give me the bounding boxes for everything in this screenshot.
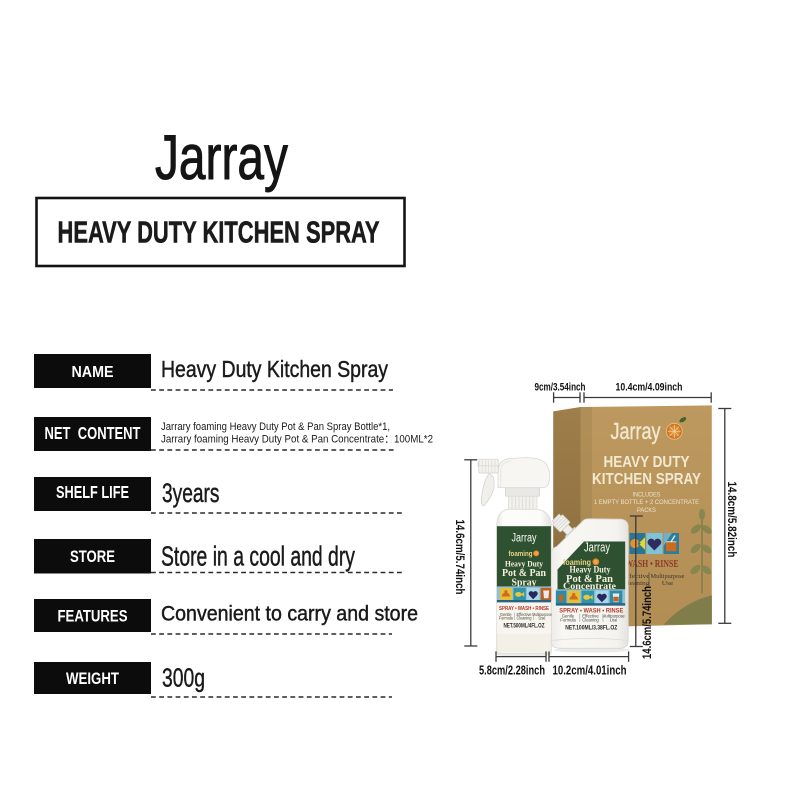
svg-text:14.8cm/5.82inch: 14.8cm/5.82inch: [725, 482, 737, 558]
svg-text:10.4cm/4.09inch: 10.4cm/4.09inch: [616, 382, 683, 394]
svg-text:5.8cm/2.28inch: 5.8cm/2.28inch: [479, 663, 545, 678]
svg-text:Jarrary foaming Heavy Duty Pot: Jarrary foaming Heavy Duty Pot & Pan Spr…: [161, 421, 390, 433]
svg-text:KITCHEN SPRAY: KITCHEN SPRAY: [592, 471, 702, 488]
svg-text:foaming: foaming: [509, 549, 533, 558]
svg-text:NAME: NAME: [72, 364, 114, 381]
svg-text:HEAVY DUTY KITCHEN SPRAY: HEAVY DUTY KITCHEN SPRAY: [58, 214, 380, 249]
svg-text:Use: Use: [662, 580, 674, 587]
svg-text:9cm/3.54inch: 9cm/3.54inch: [535, 382, 586, 394]
svg-text:NET.500ML/4FL.OZ: NET.500ML/4FL.OZ: [504, 624, 545, 630]
svg-text:INCLUDES: INCLUDES: [633, 492, 661, 499]
svg-text:Convenient to carry and store: Convenient to carry and store: [161, 600, 418, 625]
svg-text:FEATURES: FEATURES: [58, 608, 128, 626]
svg-text:HEAVY DUTY: HEAVY DUTY: [604, 454, 691, 471]
svg-text:300g: 300g: [162, 663, 205, 693]
svg-text:Jarray: Jarray: [512, 533, 537, 545]
svg-text:Jarray: Jarray: [584, 541, 611, 555]
svg-text:3years: 3years: [162, 478, 220, 508]
svg-text:SHELF LIFE: SHELF LIFE: [56, 482, 129, 502]
svg-text:Heavy Duty: Heavy Duty: [505, 559, 544, 569]
svg-text:Multipurpose: Multipurpose: [651, 573, 685, 580]
svg-text:10.2cm/4.01inch: 10.2cm/4.01inch: [553, 663, 627, 678]
svg-text:Formula: Formula: [499, 616, 514, 621]
svg-text:Jarray: Jarray: [155, 123, 288, 193]
svg-text:14.6cm/5.74inch: 14.6cm/5.74inch: [453, 520, 465, 595]
svg-text:14.6cm/5.74inch: 14.6cm/5.74inch: [642, 586, 654, 659]
svg-text:STORE: STORE: [70, 547, 115, 566]
svg-text:Use: Use: [539, 616, 547, 621]
svg-text:Use: Use: [610, 618, 618, 623]
svg-text:NET CONTENT: NET CONTENT: [45, 423, 141, 443]
svg-text:Formula: Formula: [560, 618, 576, 623]
svg-text:PACKS: PACKS: [637, 507, 656, 514]
svg-text:Cleaning: Cleaning: [517, 616, 533, 621]
svg-text:Jarrary foaming Heavy Duty Pot: Jarrary foaming Heavy Duty Pot & Pan Con…: [161, 434, 433, 446]
svg-text:Store in a cool and dry: Store in a cool and dry: [161, 540, 355, 571]
svg-text:Cleaning: Cleaning: [582, 618, 599, 623]
svg-text:SPRAY • WASH • RINSE: SPRAY • WASH • RINSE: [499, 606, 549, 612]
svg-text:1 EMPTY BOTTLE + 2 CONCENTRATE: 1 EMPTY BOTTLE + 2 CONCENTRATE: [594, 499, 699, 506]
svg-text:Heavy Duty Kitchen Spray: Heavy Duty Kitchen Spray: [161, 356, 388, 382]
svg-text:WEIGHT: WEIGHT: [66, 670, 119, 688]
svg-text:Jarray: Jarray: [611, 418, 661, 444]
svg-text:NET.100ML/3.38FL.OZ: NET.100ML/3.38FL.OZ: [565, 625, 617, 632]
